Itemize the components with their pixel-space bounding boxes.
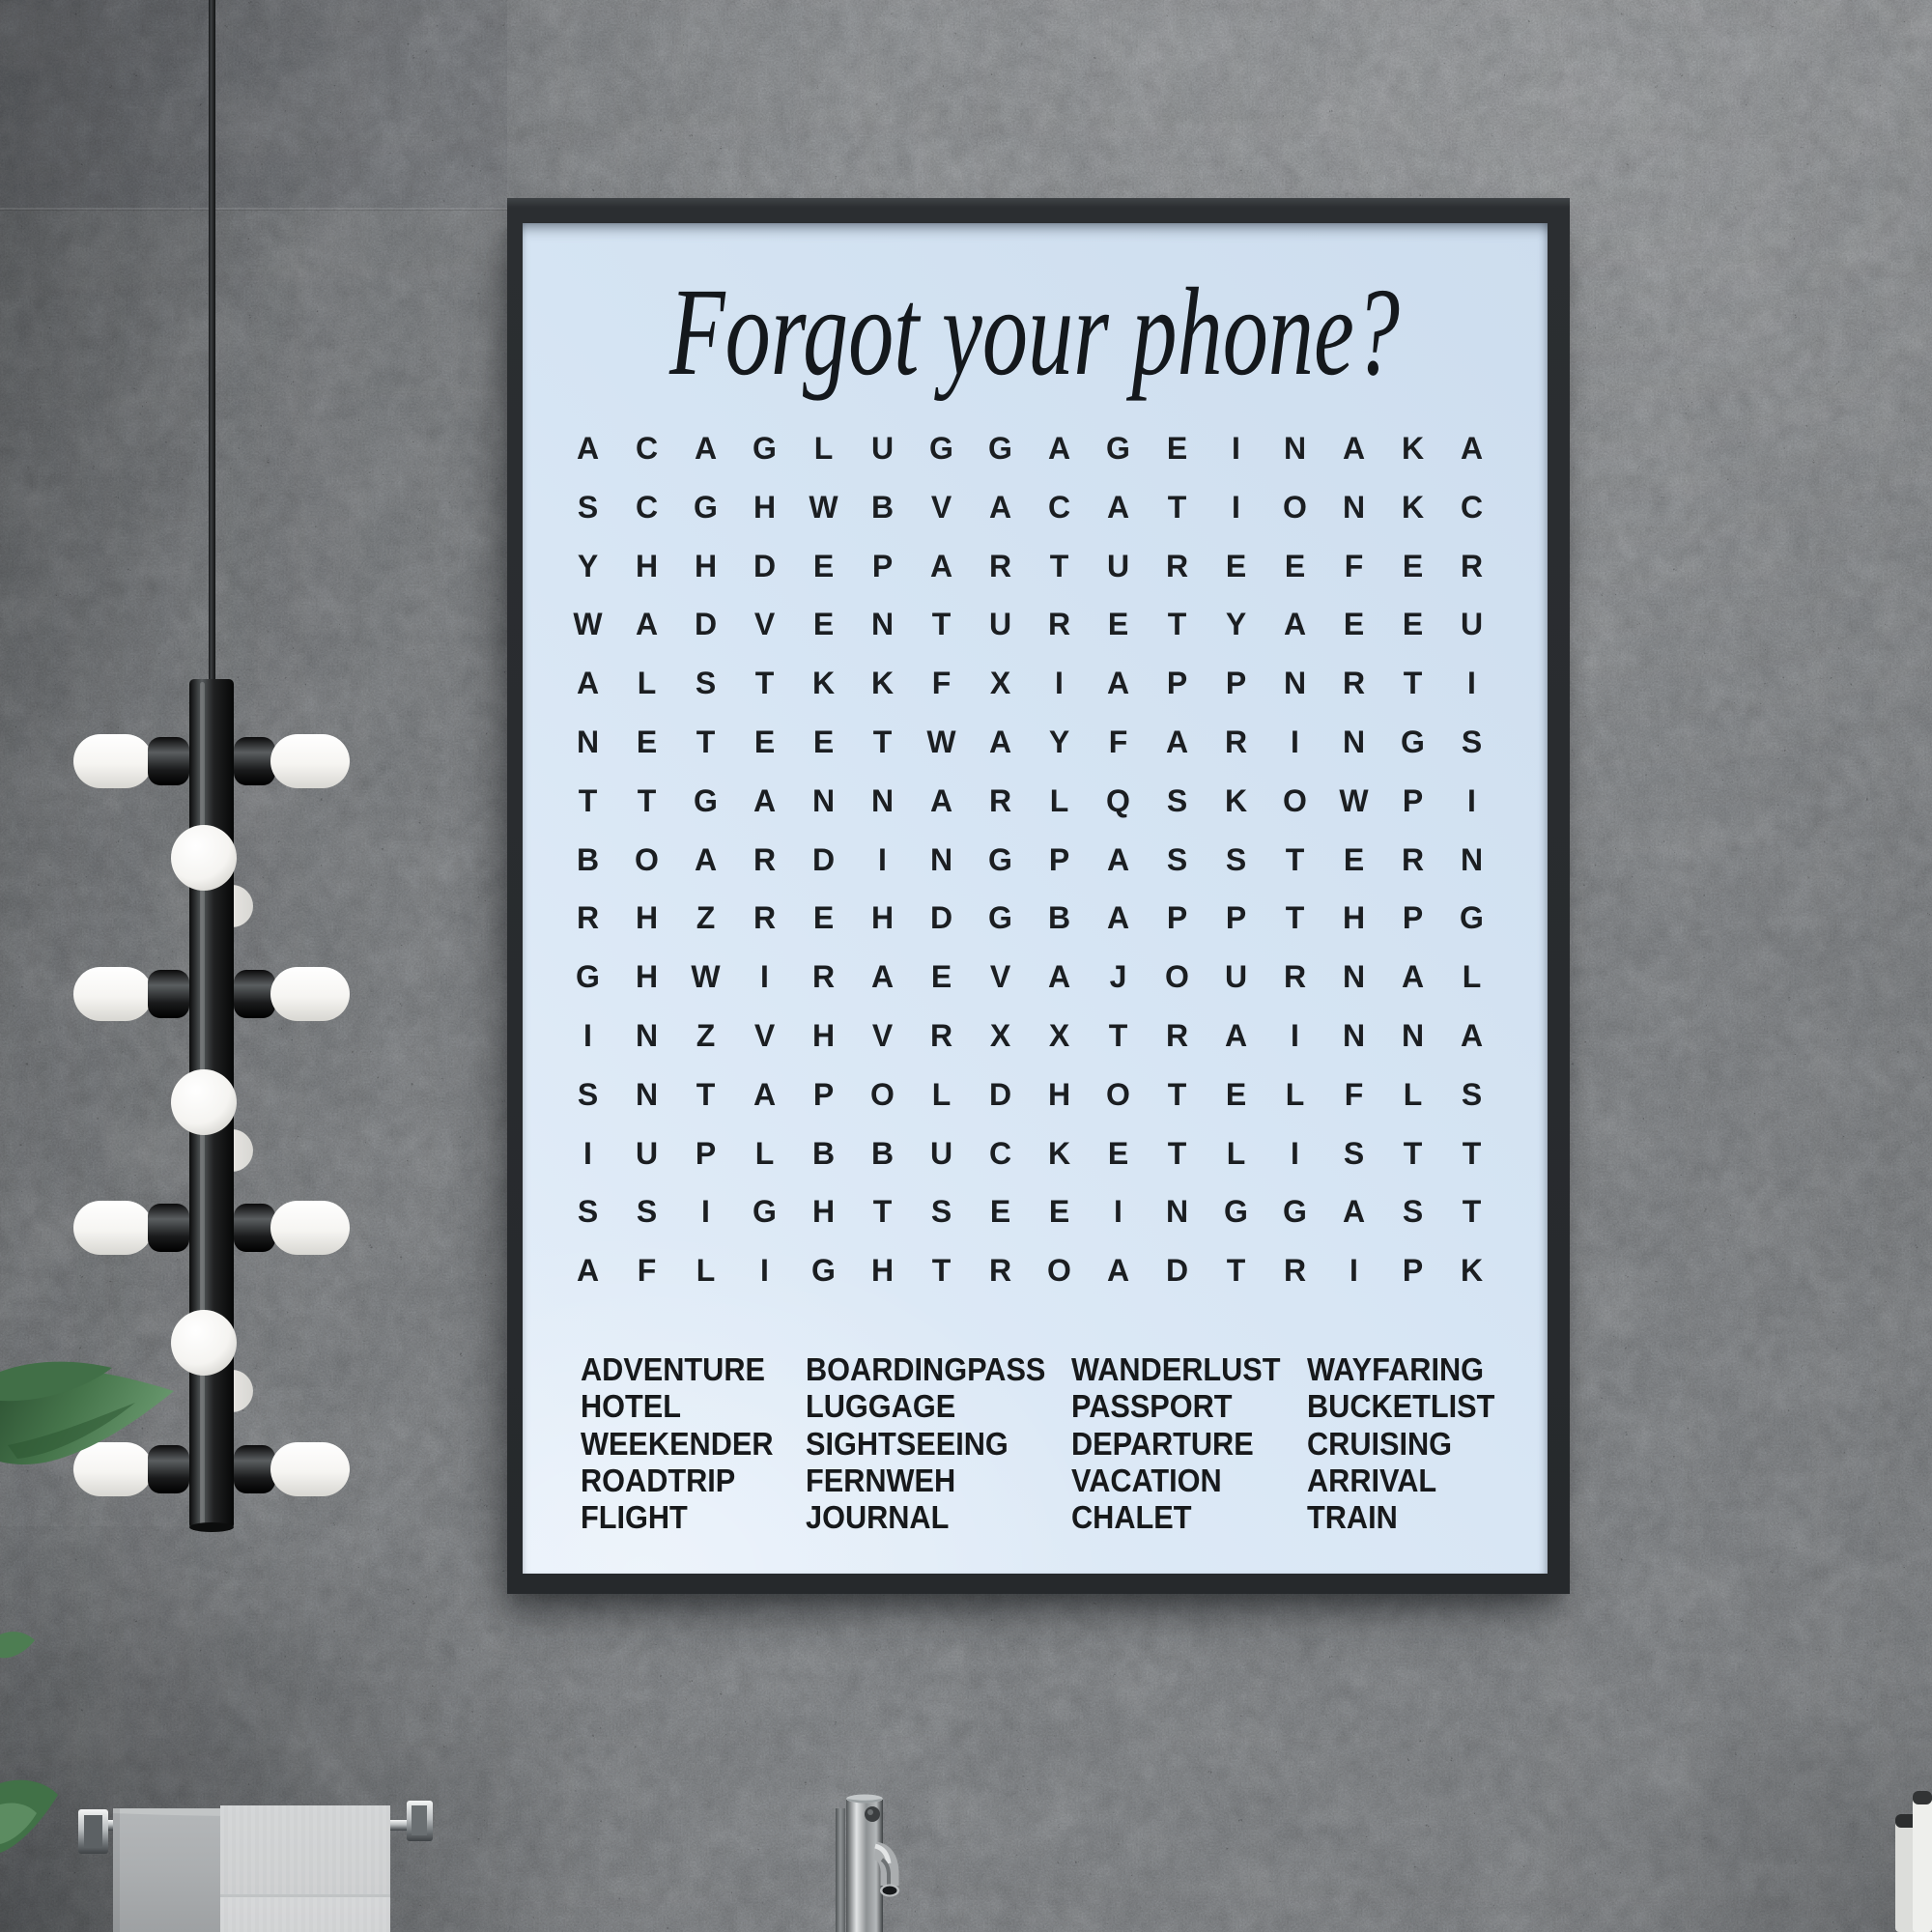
svg-text:Forgot your phone?: Forgot your phone? [668, 263, 1400, 402]
